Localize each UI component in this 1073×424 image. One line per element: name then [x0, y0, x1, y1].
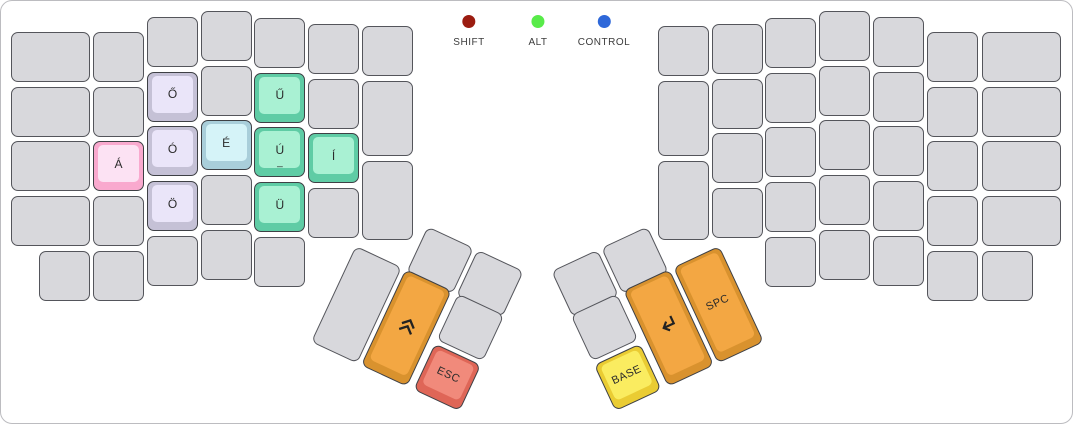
key-blank[interactable]	[765, 182, 816, 232]
key-label: É	[222, 137, 230, 149]
key-label: Ú	[276, 144, 285, 156]
key-blank[interactable]	[93, 251, 144, 301]
key-blank[interactable]	[712, 24, 763, 74]
key-blank[interactable]	[308, 188, 359, 238]
key-blank[interactable]	[819, 66, 870, 116]
key-blank[interactable]	[201, 230, 252, 280]
key-label: ESC	[435, 365, 462, 386]
key-blank[interactable]	[765, 127, 816, 177]
key-blank[interactable]	[39, 251, 90, 301]
key-e-acute[interactable]: É	[201, 120, 252, 170]
key-o-double-acute[interactable]: Ő	[147, 72, 198, 122]
key-label: Ő	[168, 88, 177, 100]
key-label: BASE	[610, 363, 643, 387]
key-blank[interactable]	[982, 251, 1033, 301]
key-blank[interactable]	[819, 230, 870, 280]
key-blank[interactable]	[362, 26, 413, 76]
key-blank[interactable]	[254, 18, 305, 68]
key-blank[interactable]	[819, 175, 870, 225]
key-blank[interactable]	[201, 175, 252, 225]
key-blank[interactable]	[765, 73, 816, 123]
key-blank[interactable]	[11, 196, 90, 246]
key-blank[interactable]	[254, 237, 305, 287]
key-blank[interactable]	[201, 11, 252, 61]
key-blank[interactable]	[927, 141, 978, 191]
key-blank[interactable]	[712, 188, 763, 238]
key-blank[interactable]	[927, 196, 978, 246]
key-blank[interactable]	[11, 141, 90, 191]
key-blank[interactable]	[765, 237, 816, 287]
key-blank[interactable]	[982, 141, 1061, 191]
key-label: Ü	[276, 199, 285, 211]
key-blank[interactable]	[927, 251, 978, 301]
key-blank[interactable]	[147, 17, 198, 67]
key-blank[interactable]	[819, 11, 870, 61]
key-blank[interactable]	[93, 196, 144, 246]
key-blank[interactable]	[93, 87, 144, 137]
keyboard-board: ÁŐÓÖÉŰÚ_ÜÍESCBASESPC	[1, 1, 1072, 423]
key-blank[interactable]	[765, 18, 816, 68]
key-i-acute[interactable]: Í	[308, 133, 359, 183]
key-blank[interactable]	[873, 236, 924, 286]
key-label: Á	[114, 158, 122, 170]
key-blank[interactable]	[982, 196, 1061, 246]
key-blank[interactable]	[11, 87, 90, 137]
key-u-acute[interactable]: Ú_	[254, 127, 305, 177]
key-sub-label: _	[259, 158, 300, 168]
key-blank[interactable]	[308, 24, 359, 74]
key-a-acute[interactable]: Á	[93, 141, 144, 191]
key-label: Ö	[168, 198, 177, 210]
key-o-acute[interactable]: Ó	[147, 126, 198, 176]
key-u-double-acute[interactable]: Ű	[254, 73, 305, 123]
key-u-umlaut[interactable]: Ü	[254, 182, 305, 232]
keymap-layer-canvas: SHIFT ALT CONTROL ÁŐÓÖÉŰÚ_ÜÍESCBASESPC	[0, 0, 1073, 424]
key-blank[interactable]	[927, 87, 978, 137]
key-blank[interactable]	[712, 79, 763, 129]
key-blank[interactable]	[11, 32, 90, 82]
key-label: Í	[332, 150, 335, 162]
double-chevron-up-icon	[391, 310, 423, 342]
key-blank[interactable]	[982, 32, 1061, 82]
key-blank[interactable]	[658, 81, 709, 156]
key-blank[interactable]	[712, 133, 763, 183]
key-blank[interactable]	[873, 181, 924, 231]
key-blank[interactable]	[982, 87, 1061, 137]
key-blank[interactable]	[147, 236, 198, 286]
key-blank[interactable]	[93, 32, 144, 82]
key-blank[interactable]	[658, 26, 709, 76]
key-blank[interactable]	[927, 32, 978, 82]
key-o-umlaut[interactable]: Ö	[147, 181, 198, 231]
enter-arrow-icon	[652, 310, 684, 342]
key-blank[interactable]	[308, 79, 359, 129]
key-label: Ű	[276, 89, 285, 101]
key-blank[interactable]	[873, 72, 924, 122]
key-label: Ó	[168, 143, 177, 155]
key-blank[interactable]	[201, 66, 252, 116]
key-blank[interactable]	[873, 17, 924, 67]
key-label: SPC	[704, 292, 731, 313]
key-blank[interactable]	[819, 120, 870, 170]
key-blank[interactable]	[362, 81, 413, 156]
key-blank[interactable]	[873, 126, 924, 176]
